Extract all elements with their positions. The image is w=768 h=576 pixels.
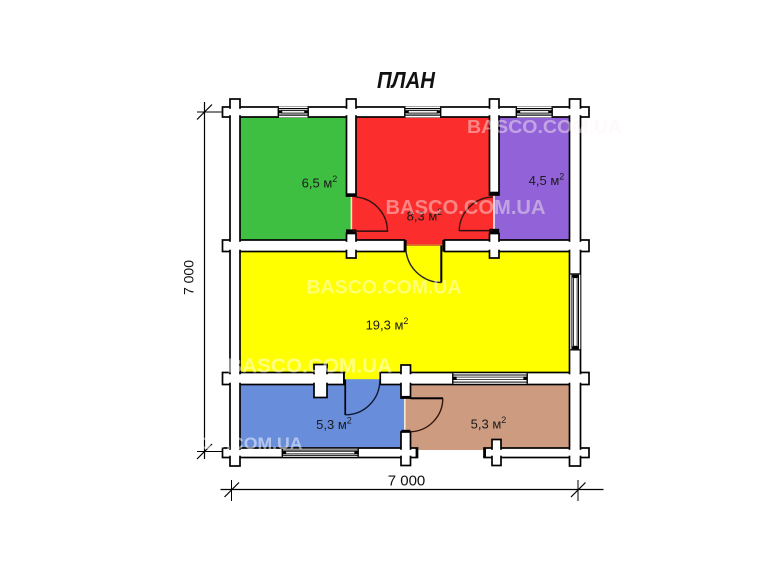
svg-text:BASCO.COM.UA: BASCO.COM.UA <box>163 434 303 453</box>
svg-text:BASCO.COM.UA: BASCO.COM.UA <box>307 278 462 299</box>
svg-text:BASCO.COM.UA: BASCO.COM.UA <box>386 196 546 219</box>
svg-text:6,5 м2: 6,5 м2 <box>302 174 338 191</box>
svg-text:BASCO.COM.UA: BASCO.COM.UA <box>467 117 622 137</box>
svg-text:ПЛАН: ПЛАН <box>377 67 435 93</box>
svg-text:5,3 м2: 5,3 м2 <box>471 415 507 432</box>
svg-text:7 000: 7 000 <box>388 473 426 490</box>
svg-text:19,3 м2: 19,3 м2 <box>366 316 409 333</box>
svg-text:5,3 м2: 5,3 м2 <box>316 416 352 433</box>
svg-text:4,5 м2: 4,5 м2 <box>529 172 565 189</box>
svg-text:BASCO.COM.UA: BASCO.COM.UA <box>227 356 392 378</box>
svg-text:7 000: 7 000 <box>181 260 197 295</box>
